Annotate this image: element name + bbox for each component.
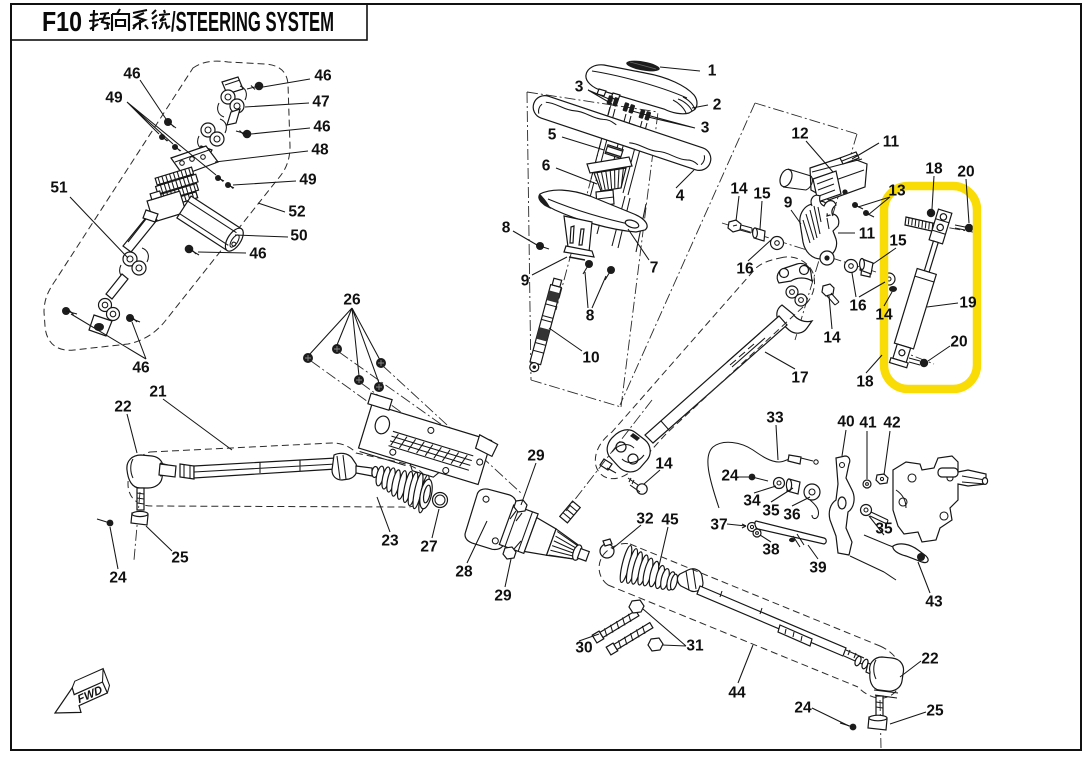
svg-text:35: 35 xyxy=(875,521,893,538)
svg-text:20: 20 xyxy=(957,164,974,181)
svg-text:/STEERING SYSTEM: /STEERING SYSTEM xyxy=(171,6,334,37)
svg-text:11: 11 xyxy=(859,226,876,243)
svg-text:37: 37 xyxy=(710,517,727,534)
svg-text:24: 24 xyxy=(794,700,812,717)
svg-text:36: 36 xyxy=(783,507,801,524)
svg-text:16: 16 xyxy=(736,261,754,278)
svg-text:9: 9 xyxy=(521,273,530,290)
svg-text:28: 28 xyxy=(455,564,473,581)
svg-text:46: 46 xyxy=(313,119,331,136)
svg-text:16: 16 xyxy=(849,298,867,315)
svg-text:18: 18 xyxy=(925,161,943,178)
svg-text:48: 48 xyxy=(311,142,329,159)
svg-text:14: 14 xyxy=(655,456,673,473)
svg-text:8: 8 xyxy=(586,308,595,325)
svg-text:45: 45 xyxy=(661,512,679,529)
svg-text:14: 14 xyxy=(823,330,841,347)
svg-text:49: 49 xyxy=(299,172,317,189)
svg-text:52: 52 xyxy=(288,204,305,221)
svg-text:7: 7 xyxy=(650,260,659,277)
svg-text:15: 15 xyxy=(753,186,771,203)
svg-text:8: 8 xyxy=(502,220,511,237)
svg-text:43: 43 xyxy=(925,594,943,611)
svg-text:11: 11 xyxy=(883,134,900,151)
svg-text:14: 14 xyxy=(875,307,893,324)
svg-text:3: 3 xyxy=(575,79,584,96)
svg-text:9: 9 xyxy=(784,195,793,212)
svg-text:46: 46 xyxy=(249,246,267,263)
svg-text:19: 19 xyxy=(959,295,977,312)
svg-text:46: 46 xyxy=(132,360,150,377)
svg-text:6: 6 xyxy=(542,158,551,175)
svg-text:2: 2 xyxy=(713,97,722,114)
svg-text:12: 12 xyxy=(791,126,808,143)
svg-text:38: 38 xyxy=(762,542,780,559)
svg-text:40: 40 xyxy=(837,414,854,431)
svg-text:33: 33 xyxy=(766,410,784,427)
svg-text:24: 24 xyxy=(721,468,739,485)
svg-text:50: 50 xyxy=(290,228,307,245)
svg-text:47: 47 xyxy=(312,94,329,111)
svg-text:22: 22 xyxy=(921,651,938,668)
svg-text:51: 51 xyxy=(50,180,68,197)
svg-text:31: 31 xyxy=(686,638,704,655)
svg-text:39: 39 xyxy=(809,560,827,577)
svg-text:25: 25 xyxy=(926,703,944,720)
svg-text:1: 1 xyxy=(708,63,717,80)
svg-text:15: 15 xyxy=(889,233,907,250)
svg-text:21: 21 xyxy=(149,384,167,401)
svg-text:27: 27 xyxy=(420,539,437,556)
svg-text:4: 4 xyxy=(676,188,685,205)
svg-text:25: 25 xyxy=(171,550,189,567)
svg-text:46: 46 xyxy=(314,68,332,85)
svg-text:41: 41 xyxy=(859,415,877,432)
svg-text:44: 44 xyxy=(728,685,746,702)
svg-text:13: 13 xyxy=(888,183,906,200)
svg-text:22: 22 xyxy=(114,399,131,416)
svg-text:F10: F10 xyxy=(42,6,82,37)
svg-text:32: 32 xyxy=(636,511,653,528)
svg-text:20: 20 xyxy=(950,334,967,351)
svg-text:29: 29 xyxy=(494,588,512,605)
svg-text:29: 29 xyxy=(527,448,545,465)
svg-text:5: 5 xyxy=(548,127,557,144)
svg-text:46: 46 xyxy=(123,66,141,83)
svg-text:26: 26 xyxy=(343,292,361,309)
svg-text:14: 14 xyxy=(730,181,748,198)
svg-text:3: 3 xyxy=(701,120,710,137)
svg-text:49: 49 xyxy=(105,90,123,107)
svg-text:30: 30 xyxy=(575,640,592,657)
svg-text:35: 35 xyxy=(762,503,780,520)
svg-text:10: 10 xyxy=(582,350,599,367)
svg-text:18: 18 xyxy=(856,374,874,391)
svg-text:23: 23 xyxy=(381,533,399,550)
svg-text:17: 17 xyxy=(791,370,808,387)
svg-text:34: 34 xyxy=(743,493,761,510)
svg-text:24: 24 xyxy=(109,570,127,587)
svg-text:42: 42 xyxy=(883,415,900,432)
